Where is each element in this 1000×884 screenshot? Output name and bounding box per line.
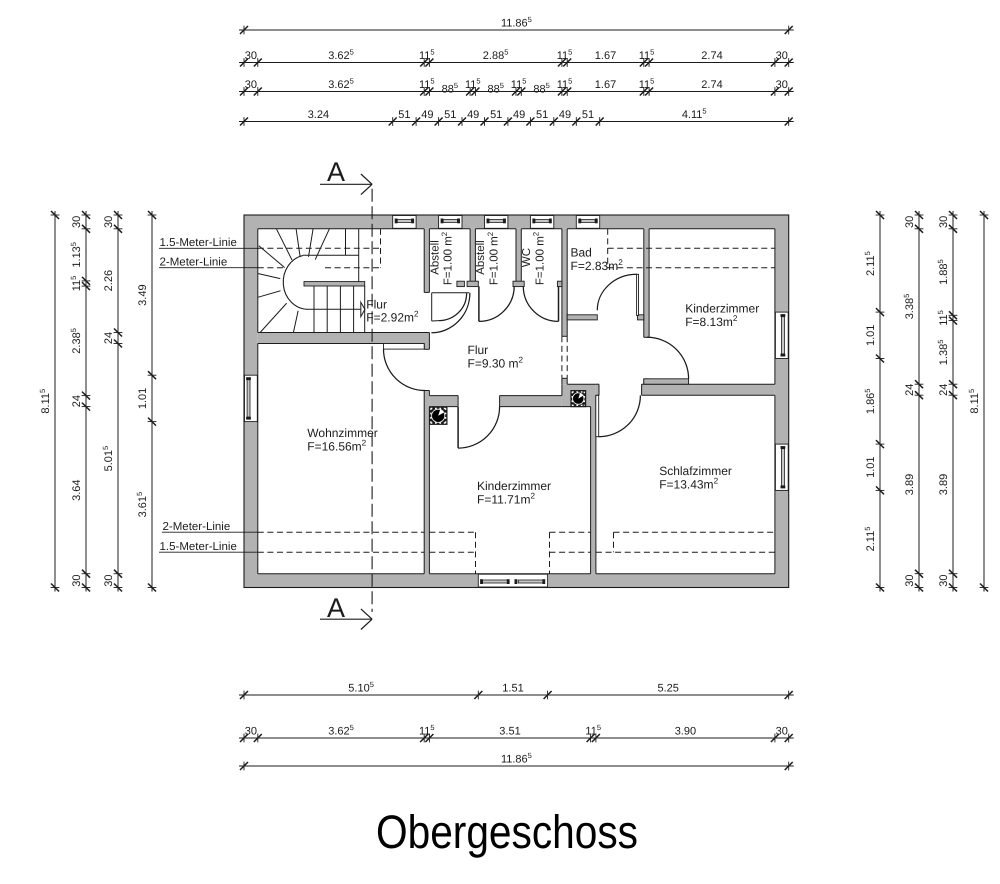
svg-text:11.865: 11.865 xyxy=(501,15,532,29)
svg-text:49: 49 xyxy=(559,109,571,121)
svg-text:A: A xyxy=(327,593,345,623)
svg-text:F=1.00 m2: F=1.00 m2 xyxy=(486,232,501,285)
svg-text:30: 30 xyxy=(245,79,257,91)
svg-text:Schlafzimmer: Schlafzimmer xyxy=(659,464,732,478)
svg-text:Kinderzimmer: Kinderzimmer xyxy=(685,302,759,316)
svg-text:3.51: 3.51 xyxy=(499,726,520,738)
svg-text:1.51: 1.51 xyxy=(502,683,523,695)
svg-text:Flur: Flur xyxy=(468,343,489,357)
svg-text:24: 24 xyxy=(71,395,83,407)
svg-text:Bad: Bad xyxy=(571,246,592,260)
svg-text:5.25: 5.25 xyxy=(657,683,678,695)
svg-text:30: 30 xyxy=(245,726,257,738)
svg-text:2.74: 2.74 xyxy=(701,79,722,91)
svg-text:WC: WC xyxy=(521,248,533,267)
svg-text:F=1.00 m2: F=1.00 m2 xyxy=(440,232,455,285)
svg-text:F=16.56m2: F=16.56m2 xyxy=(307,439,366,454)
svg-text:49: 49 xyxy=(421,109,433,121)
svg-text:30: 30 xyxy=(71,574,83,586)
svg-text:1.67: 1.67 xyxy=(595,79,616,91)
svg-text:51: 51 xyxy=(582,109,594,121)
svg-text:11.865: 11.865 xyxy=(501,751,532,765)
svg-text:3.64: 3.64 xyxy=(71,479,83,500)
svg-text:2.26: 2.26 xyxy=(103,270,115,291)
svg-text:1.01: 1.01 xyxy=(137,388,149,409)
svg-text:1.01: 1.01 xyxy=(865,456,877,477)
svg-text:30: 30 xyxy=(776,79,788,91)
svg-text:3.89: 3.89 xyxy=(904,474,916,495)
svg-text:51: 51 xyxy=(490,109,502,121)
svg-text:30: 30 xyxy=(938,574,950,586)
svg-text:24: 24 xyxy=(904,384,916,396)
svg-text:1.01: 1.01 xyxy=(865,325,877,346)
svg-text:1.5-Meter-Linie: 1.5-Meter-Linie xyxy=(160,237,237,249)
svg-text:Wohnzimmer: Wohnzimmer xyxy=(307,426,377,440)
svg-text:51: 51 xyxy=(444,109,456,121)
svg-text:30: 30 xyxy=(776,50,788,62)
svg-text:2.74: 2.74 xyxy=(701,50,722,62)
svg-text:Flur: Flur xyxy=(366,298,387,312)
svg-text:30: 30 xyxy=(71,216,83,228)
svg-text:3.89: 3.89 xyxy=(938,474,950,495)
svg-text:24: 24 xyxy=(103,332,115,344)
svg-text:30: 30 xyxy=(938,216,950,228)
svg-text:30: 30 xyxy=(904,216,916,228)
svg-text:49: 49 xyxy=(513,109,525,121)
svg-text:Abstell: Abstell xyxy=(475,240,487,275)
svg-text:30: 30 xyxy=(245,50,257,62)
svg-text:30: 30 xyxy=(904,574,916,586)
svg-text:3.90: 3.90 xyxy=(675,726,696,738)
svg-text:3.49: 3.49 xyxy=(137,284,149,305)
svg-text:51: 51 xyxy=(536,109,548,121)
svg-text:2-Meter-Linie: 2-Meter-Linie xyxy=(163,521,231,533)
svg-text:Abstell: Abstell xyxy=(429,240,441,275)
svg-text:F=13.43m2: F=13.43m2 xyxy=(659,477,718,492)
svg-text:30: 30 xyxy=(103,574,115,586)
svg-text:24: 24 xyxy=(938,384,950,396)
svg-text:1.5-Meter-Linie: 1.5-Meter-Linie xyxy=(160,541,237,553)
svg-text:F=1.00 m2: F=1.00 m2 xyxy=(532,232,547,285)
svg-text:30: 30 xyxy=(776,726,788,738)
svg-text:2-Meter-Linie: 2-Meter-Linie xyxy=(160,256,228,268)
svg-text:F=8.13m2: F=8.13m2 xyxy=(685,314,738,329)
svg-text:49: 49 xyxy=(467,109,479,121)
svg-text:Obergeschoss: Obergeschoss xyxy=(376,805,638,858)
svg-text:A: A xyxy=(327,157,345,187)
svg-text:F=11.71m2: F=11.71m2 xyxy=(477,492,535,507)
svg-text:51: 51 xyxy=(398,109,410,121)
svg-text:3.24: 3.24 xyxy=(308,109,329,121)
svg-text:30: 30 xyxy=(103,216,115,228)
svg-text:F=2.92m2: F=2.92m2 xyxy=(366,310,419,325)
svg-text:F=9.30 m2: F=9.30 m2 xyxy=(468,356,524,371)
svg-text:Kinderzimmer: Kinderzimmer xyxy=(477,479,551,493)
svg-text:F=2.83m2: F=2.83m2 xyxy=(571,258,624,273)
svg-text:1.67: 1.67 xyxy=(595,50,616,62)
